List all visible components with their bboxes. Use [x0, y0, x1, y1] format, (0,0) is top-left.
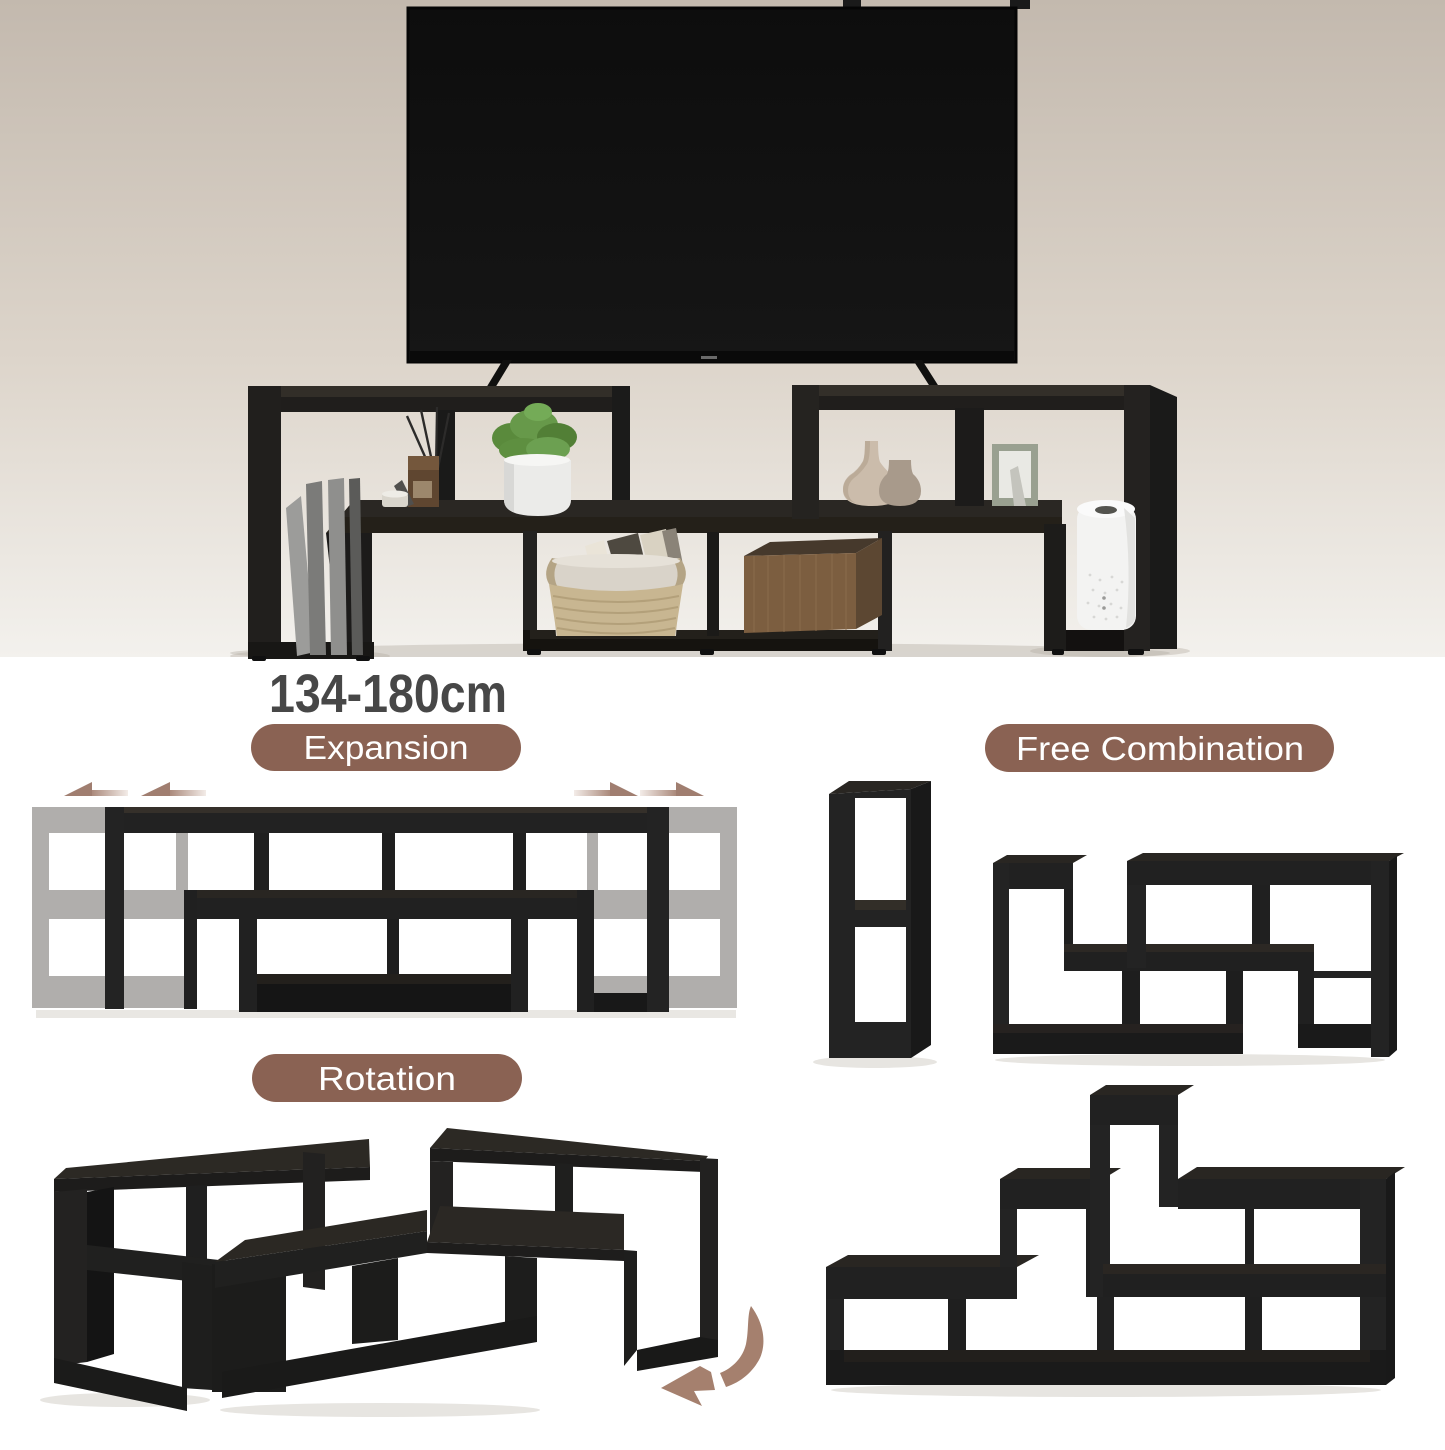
- svg-text:Rotation: Rotation: [318, 1060, 456, 1097]
- svg-text:Free Combination: Free Combination: [1016, 730, 1304, 767]
- svg-text:Expansion: Expansion: [304, 729, 469, 766]
- svg-text:134-180cm: 134-180cm: [269, 664, 507, 724]
